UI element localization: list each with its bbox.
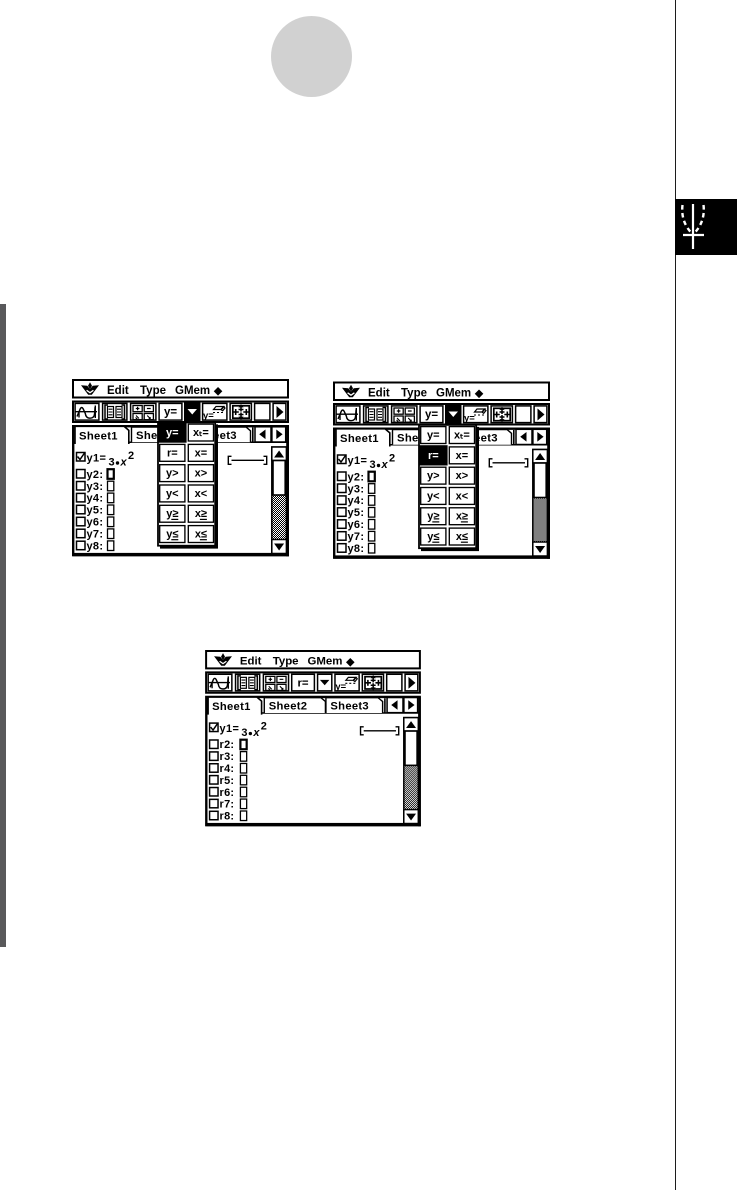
svg-text:y<: y< bbox=[427, 490, 440, 502]
svg-text:r6:: r6: bbox=[220, 787, 235, 799]
svg-text:y=: y= bbox=[166, 427, 179, 439]
svg-text:GMem: GMem bbox=[175, 385, 210, 397]
svg-text:y6:: y6: bbox=[348, 519, 365, 531]
svg-text:Edit: Edit bbox=[240, 656, 262, 668]
svg-text:x=: x= bbox=[456, 450, 469, 462]
svg-text:Sheet1: Sheet1 bbox=[79, 430, 118, 442]
svg-text:x>: x> bbox=[456, 470, 469, 482]
svg-text:GMem: GMem bbox=[308, 656, 343, 668]
svg-text:GMem: GMem bbox=[436, 387, 471, 399]
svg-text:y8:: y8: bbox=[348, 543, 365, 555]
svg-text:2: 2 bbox=[128, 450, 134, 462]
svg-text:y7:: y7: bbox=[348, 531, 365, 543]
svg-text:y1=: y1= bbox=[348, 455, 368, 467]
svg-text:Sheet3: Sheet3 bbox=[330, 701, 369, 713]
svg-text:x≤: x≤ bbox=[195, 529, 207, 541]
svg-text:3: 3 bbox=[241, 727, 247, 739]
svg-text:y2:: y2: bbox=[348, 471, 365, 483]
svg-text:Sheet2: Sheet2 bbox=[269, 701, 308, 713]
svg-text:r7:: r7: bbox=[220, 799, 235, 811]
svg-text:y1=: y1= bbox=[220, 723, 240, 735]
svg-text:y7:: y7: bbox=[87, 529, 104, 541]
svg-text:x<: x< bbox=[195, 488, 208, 500]
svg-text:Type: Type bbox=[273, 656, 299, 668]
svg-text:r2:: r2: bbox=[220, 739, 235, 751]
svg-text:y6:: y6: bbox=[87, 517, 104, 529]
svg-text:x=: x= bbox=[195, 447, 208, 459]
svg-text:r8:: r8: bbox=[220, 811, 235, 823]
svg-text:y3:: y3: bbox=[87, 481, 104, 493]
svg-text:y<: y< bbox=[166, 488, 179, 500]
svg-text:y≥: y≥ bbox=[427, 511, 439, 523]
svg-text:y4:: y4: bbox=[87, 493, 104, 505]
svg-text:xₜ=: xₜ= bbox=[454, 430, 470, 442]
svg-text:r=: r= bbox=[167, 447, 178, 459]
svg-text:Edit: Edit bbox=[368, 387, 390, 399]
svg-text:y=: y= bbox=[164, 407, 177, 419]
svg-text:x>: x> bbox=[195, 468, 208, 480]
svg-text:Type: Type bbox=[401, 387, 427, 399]
svg-text:◆: ◆ bbox=[345, 657, 354, 668]
svg-text:x: x bbox=[252, 727, 260, 739]
svg-text:Sheet1: Sheet1 bbox=[212, 701, 251, 713]
svg-text:x≥: x≥ bbox=[456, 511, 468, 523]
svg-text:y=: y= bbox=[203, 411, 214, 422]
svg-text:y8:: y8: bbox=[87, 541, 104, 553]
svg-text:2: 2 bbox=[261, 721, 267, 733]
svg-text:x: x bbox=[120, 457, 128, 469]
svg-text:x<: x< bbox=[456, 490, 469, 502]
svg-text:r=: r= bbox=[297, 677, 308, 689]
svg-text:◆: ◆ bbox=[474, 388, 484, 400]
svg-text:3: 3 bbox=[370, 459, 376, 471]
svg-text:3: 3 bbox=[109, 457, 115, 469]
svg-text:y=: y= bbox=[427, 430, 440, 442]
svg-text:r=: r= bbox=[428, 450, 439, 462]
svg-text:y>: y> bbox=[427, 470, 440, 482]
svg-text:Edit: Edit bbox=[107, 385, 129, 397]
svg-text:r5:: r5: bbox=[220, 775, 235, 787]
svg-text:y>: y> bbox=[166, 468, 179, 480]
svg-text:x≥: x≥ bbox=[195, 508, 207, 520]
svg-text:y≥: y≥ bbox=[166, 508, 178, 520]
svg-text:y1=: y1= bbox=[87, 453, 107, 465]
svg-text:y2:: y2: bbox=[87, 469, 104, 481]
svg-text:y≤: y≤ bbox=[166, 529, 178, 541]
svg-text:Type: Type bbox=[140, 385, 166, 397]
svg-text:r4:: r4: bbox=[220, 763, 235, 775]
svg-text:y5:: y5: bbox=[348, 507, 365, 519]
svg-text:Sheet1: Sheet1 bbox=[340, 433, 379, 445]
svg-text:y=: y= bbox=[425, 409, 438, 421]
svg-text:y5:: y5: bbox=[87, 505, 104, 517]
svg-text:y≤: y≤ bbox=[427, 531, 439, 543]
svg-text:◆: ◆ bbox=[213, 385, 223, 397]
svg-text:xₜ=: xₜ= bbox=[193, 427, 209, 439]
svg-text:x: x bbox=[381, 459, 389, 471]
svg-text:y=: y= bbox=[464, 413, 475, 424]
svg-text:y3:: y3: bbox=[348, 483, 365, 495]
svg-text:y4:: y4: bbox=[348, 495, 365, 507]
svg-text:r3:: r3: bbox=[220, 751, 235, 763]
svg-text:y=: y= bbox=[335, 681, 346, 692]
svg-text:2: 2 bbox=[389, 453, 395, 465]
svg-text:x≤: x≤ bbox=[456, 531, 468, 543]
